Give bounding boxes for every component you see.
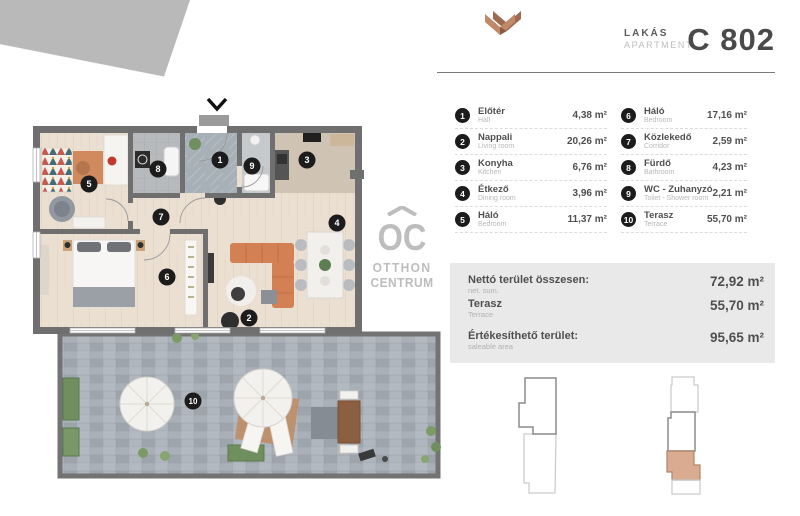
header-divider [437, 72, 775, 73]
summary-value: 95,65 m² [710, 330, 764, 345]
stool [108, 157, 117, 166]
room-list-item: 9WC - ZuhanyzóToilet - Shower room2,21 m… [621, 181, 747, 207]
summary-row: Nettó terület összesen:net. sum.72,92 m² [468, 274, 764, 295]
summary-value: 72,92 m² [710, 274, 764, 289]
room-name-en: Corridor [644, 143, 709, 150]
potted-plant [138, 448, 148, 458]
room-name-hu: Terasz [644, 211, 703, 221]
summary-label-en: Terrace [468, 310, 502, 319]
planter [63, 378, 79, 420]
apartment-type-label: LAKÁS APARTMENT [624, 28, 693, 50]
plan-badge-number: 9 [249, 161, 254, 171]
summary-label-hu: Értékesíthető terület: [468, 330, 578, 342]
room-list-item: 2NappaliLiving room20,26 m² [455, 129, 607, 155]
shower-tray [244, 174, 269, 191]
room-list-item: 7KözlekedőCorridor2,59 m² [621, 129, 747, 155]
room-name-hu: Háló [478, 211, 564, 221]
room-list-item: 8FürdőBathroom4,23 m² [621, 155, 747, 181]
summary-label-en: saleable area [468, 342, 578, 351]
room-name-en: Toilet - Shower room [644, 195, 709, 202]
room-name-hu: Közlekedő [644, 133, 709, 143]
room-name-en: Bedroom [478, 221, 564, 228]
room-list-item: 1ElőtérHall4,38 m² [455, 103, 607, 129]
tv-unit [208, 253, 214, 283]
summary-value: 55,70 m² [710, 298, 764, 313]
washing-machine [135, 151, 150, 168]
room-list-right: 6HálóBedroom17,16 m²7KözlekedőCorridor2,… [621, 103, 747, 233]
wardrobe [42, 148, 72, 192]
plan-badge-number: 10 [189, 397, 198, 406]
room-number-badge: 1 [455, 108, 470, 123]
room-list-item: 5HálóBedroom11,37 m² [455, 207, 607, 233]
terrace-umbrella-table [120, 377, 174, 431]
room-name-hu: WC - Zuhanyzó [644, 185, 709, 195]
room-number-badge: 2 [455, 134, 470, 149]
room-name-hu: Előtér [478, 107, 569, 117]
room-area-value: 4,23 m² [713, 162, 747, 173]
room-number-badge: 8 [621, 160, 636, 175]
planter [63, 428, 79, 456]
room-name-en: Kitchen [478, 169, 569, 176]
room-name-en: Terrace [644, 221, 703, 228]
building-location-diagrams [505, 372, 715, 500]
room-area-value: 2,59 m² [713, 136, 747, 147]
apartment-datasheet-page: LAKÁS APARTMENT C 802 1ElőtérHall4,38 m²… [0, 0, 800, 516]
area-summary-box: Nettó terület összesen:net. sum.72,92 m²… [450, 263, 775, 363]
bathtub [164, 147, 179, 176]
terrace-area [60, 332, 441, 476]
sink [250, 135, 260, 145]
room-name-en: Hall [478, 117, 569, 124]
room-list-item: 4ÉtkezőDining room3,96 m² [455, 181, 607, 207]
summary-label-en: net. sum. [468, 286, 589, 295]
plant [189, 138, 201, 150]
room-area-value: 6,76 m² [573, 162, 607, 173]
room-name-hu: Fürdő [644, 159, 709, 169]
room-number-badge: 10 [621, 212, 636, 227]
room-name-en: Bedroom [644, 117, 703, 124]
bed [63, 240, 145, 307]
room-name-en: Dining room [478, 195, 569, 202]
unit-number: C 802 [687, 22, 775, 58]
room-name-en: Bathroom [644, 169, 709, 176]
window-bench [40, 245, 49, 295]
room-area-value: 17,16 m² [707, 110, 747, 121]
chair [76, 161, 90, 175]
bench [73, 217, 105, 228]
floor-plan: 12345678910 [25, 95, 445, 495]
plan-badge-number: 4 [334, 218, 339, 228]
room-number-badge: 5 [455, 212, 470, 227]
plan-badge-number: 6 [164, 272, 169, 282]
plan-badge-number: 5 [86, 179, 91, 189]
summary-row: Értékesíthető terület:saleable area95,65… [468, 330, 764, 351]
room-name-en: Living room [478, 143, 563, 150]
room-name-hu: Nappali [478, 133, 563, 143]
potted-plant [172, 333, 182, 343]
kitchen-shelf [330, 134, 354, 146]
sofa-cushion [261, 290, 277, 304]
summary-row: TeraszTerrace55,70 m² [468, 298, 764, 319]
room-area-value: 4,38 m² [573, 110, 607, 121]
room-area-value: 2,21 m² [713, 188, 747, 199]
entrance-arrow-icon [208, 99, 226, 109]
room-number-badge: 4 [455, 186, 470, 201]
room-list-left: 1ElőtérHall4,38 m²2NappaliLiving room20,… [455, 103, 607, 233]
room-area-value: 55,70 m² [707, 214, 747, 225]
plan-badge-number: 7 [158, 212, 163, 222]
room-list-item: 3KonyhaKitchen6,76 m² [455, 155, 607, 181]
room-area-value: 11,37 m² [568, 214, 607, 225]
room-number-badge: 7 [621, 134, 636, 149]
corner-decoration [0, 0, 200, 90]
room-area-value: 3,96 m² [573, 188, 607, 199]
plan-badge-number: 2 [246, 313, 251, 323]
building-outline-right-with-unit [667, 377, 700, 494]
room-number-badge: 9 [621, 186, 636, 201]
unit-highlight [667, 451, 700, 480]
room-number-badge: 3 [455, 160, 470, 175]
room-list-item: 10TeraszTerrace55,70 m² [621, 207, 747, 233]
room-name-hu: Háló [644, 107, 703, 117]
plan-badge-number: 1 [217, 155, 222, 165]
plan-badge-number: 3 [304, 155, 309, 165]
building-outline-left [519, 378, 556, 493]
room-area-value: 20,26 m² [567, 136, 607, 147]
room-name-hu: Étkező [478, 185, 569, 195]
summary-label-hu: Terasz [468, 298, 502, 310]
developer-logo-icon [483, 10, 525, 45]
room-number-badge: 6 [621, 108, 636, 123]
potted-plant [160, 451, 170, 461]
type-label-hu: LAKÁS [624, 28, 693, 40]
summary-label-hu: Nettó terület összesen: [468, 274, 589, 286]
plan-badge-number: 8 [155, 164, 160, 174]
coffee-table [231, 287, 245, 301]
type-label-en: APARTMENT [624, 40, 693, 50]
dining-table [295, 232, 355, 298]
room-list-item: 6HálóBedroom17,16 m² [621, 103, 747, 129]
room-name-hu: Konyha [478, 159, 569, 169]
